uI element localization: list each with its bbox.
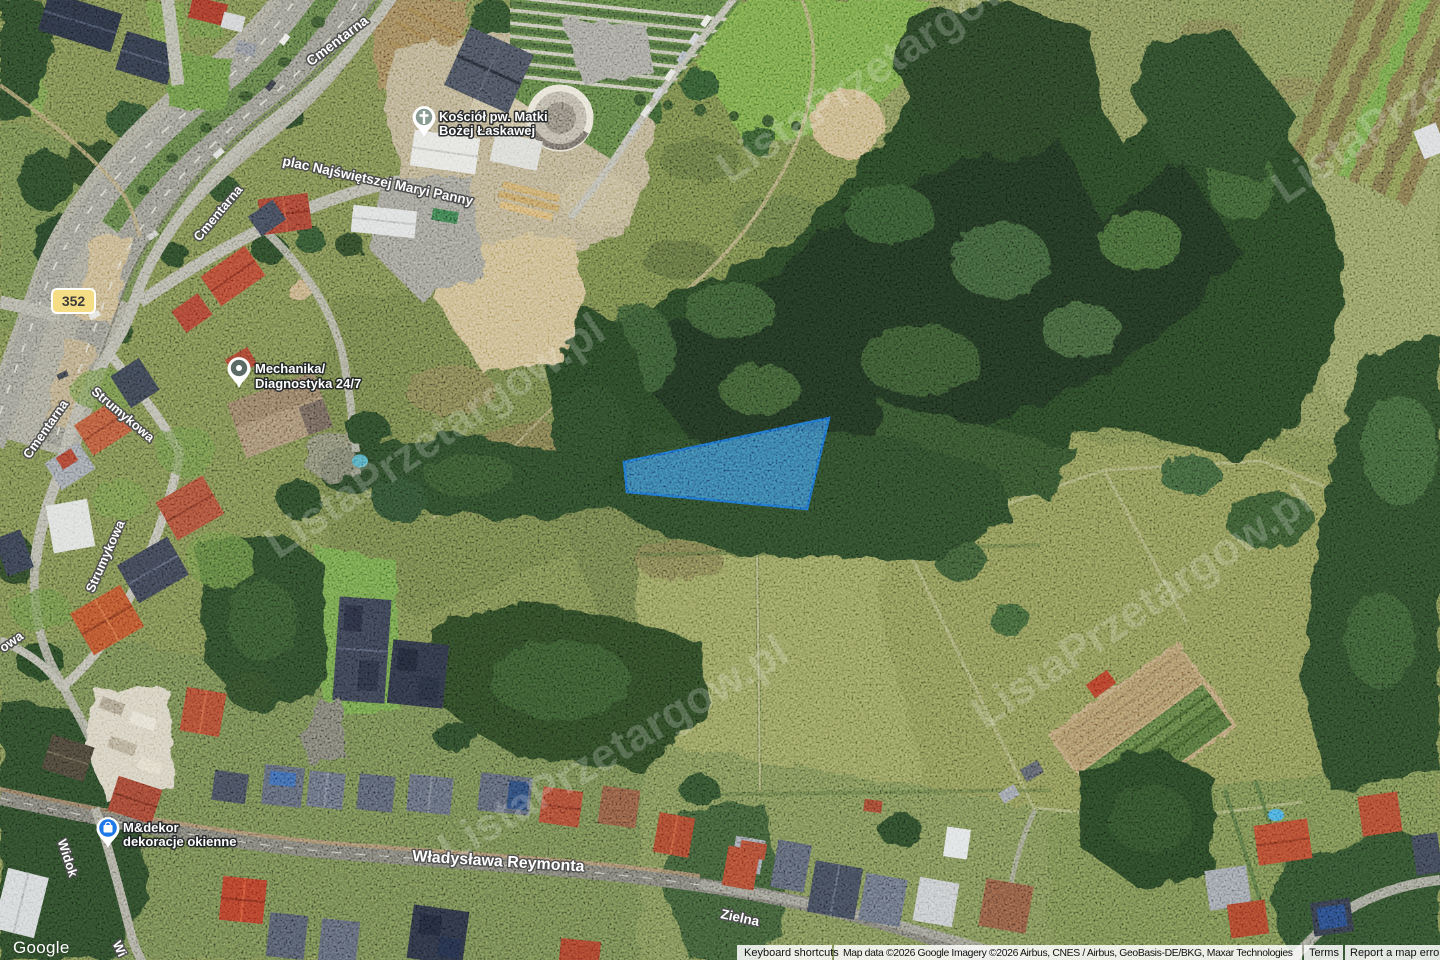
svg-text:Bożej Łaskawej: Bożej Łaskawej [439, 123, 535, 138]
svg-text:Diagnostyka 24/7: Diagnostyka 24/7 [255, 376, 361, 391]
svg-text:Keyboard shortcuts: Keyboard shortcuts [744, 947, 839, 959]
svg-text:Kościół pw. Matki: Kościół pw. Matki [439, 109, 548, 124]
svg-text:Google: Google [13, 938, 70, 957]
svg-text:dekoracje okienne: dekoracje okienne [123, 834, 236, 849]
svg-text:M&dekor: M&dekor [123, 820, 179, 835]
svg-text:Terms: Terms [1309, 947, 1339, 959]
svg-text:352: 352 [62, 293, 86, 309]
svg-text:Report a map error: Report a map error [1350, 947, 1440, 959]
svg-text:Map data ©2026 Google Imagery: Map data ©2026 Google Imagery ©2026 Airb… [843, 948, 1293, 959]
svg-text:Mechanika/: Mechanika/ [255, 361, 325, 376]
